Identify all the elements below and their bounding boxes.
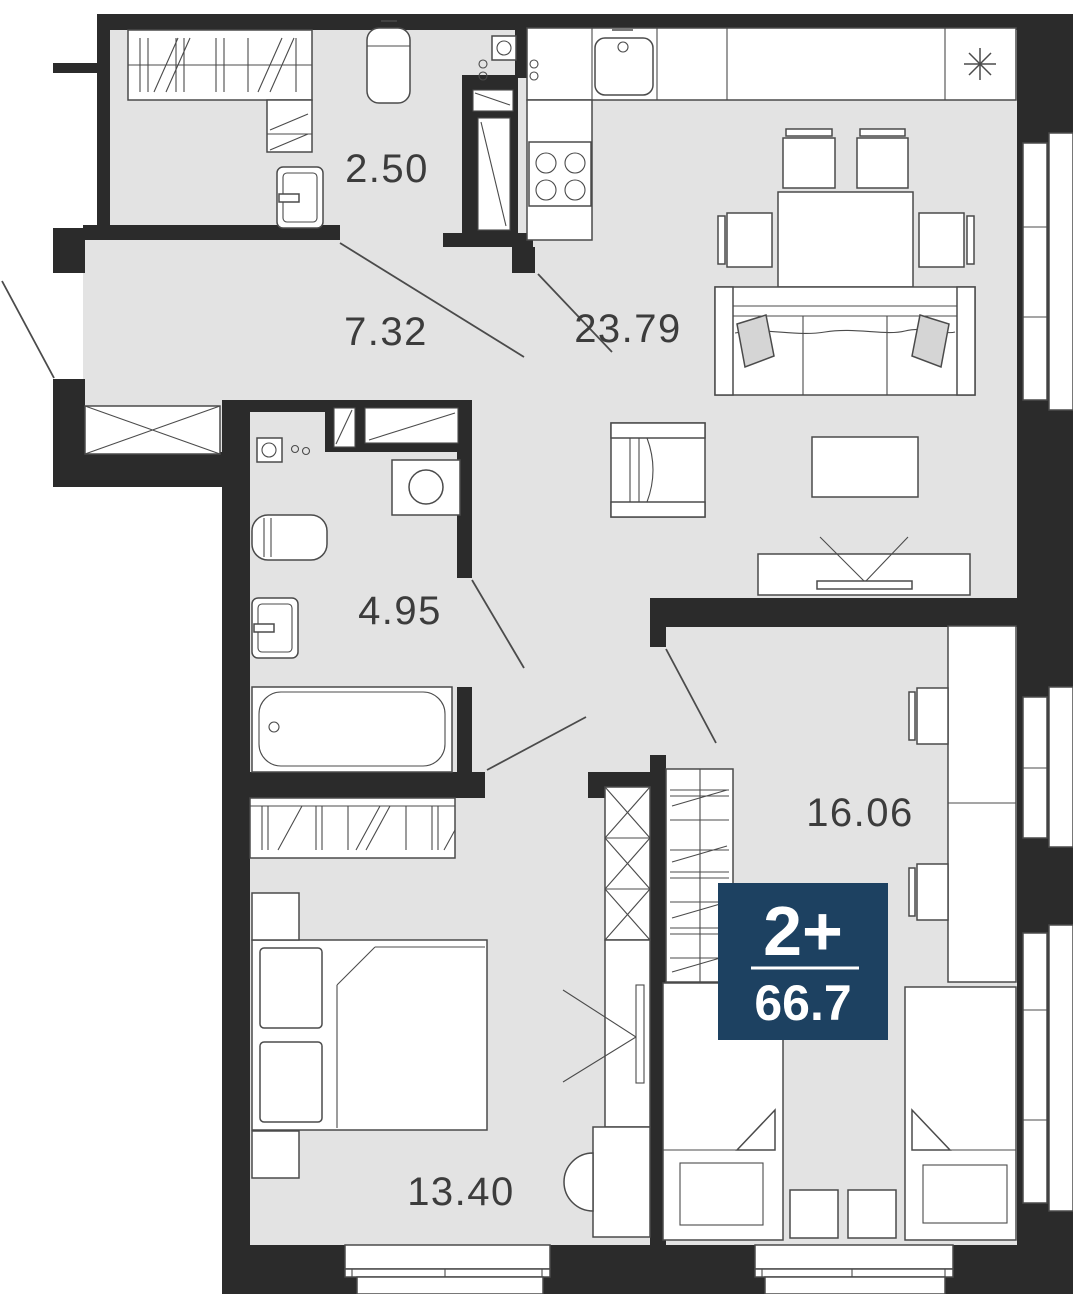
dining-table [778,192,913,287]
desk-chair-upper [909,688,948,744]
desk-chair-lower [909,864,948,920]
badge-total-area: 66.7 [754,975,851,1031]
desk-bedroom-right [948,626,1016,982]
storage-washbasin [277,167,323,228]
storage-boiler [367,21,410,103]
wardrobe-hatch-bedroom-left [250,798,455,858]
room-area-label-bathroom: 4.95 [358,589,442,633]
bathtub [252,687,452,772]
nightstand-between-beds-right [848,1190,896,1238]
pillow [260,948,322,1028]
nightstand-top [252,893,299,940]
room-area-label-storage: 2.50 [345,147,429,191]
floor-plan-page: 2.50 7.32 23.79 4.95 16.06 13.40 2+ 66.7 [0,0,1073,1294]
tv [817,581,912,589]
room-area-label-bedroom-right: 16.06 [806,791,914,835]
coffee-table [812,437,918,497]
armchair [611,423,705,517]
vent-shaft-kitchen [473,90,513,230]
bathroom-washbasin [252,598,298,658]
room-area-label-kitchen-living: 23.79 [574,307,682,351]
bathroom-niches [334,408,458,447]
stove [529,142,591,206]
pillow [260,1042,322,1122]
vent-shaft-bedroom-left [605,787,650,940]
storage-wardrobe-hatch [128,30,312,100]
single-bed-right [905,987,1016,1240]
toilet [252,515,327,560]
nightstand-bottom [252,1131,299,1178]
washing-machine [392,460,460,515]
window-bedroom-right-bottom [755,1245,953,1294]
sofa [715,287,975,395]
dining-chair-top-left [783,129,835,188]
badge-rooms-label: 2+ [763,892,843,970]
storage-shelf-unit [267,100,312,152]
dining-chair-top-right [857,129,908,188]
entry-door-swing [2,281,54,378]
room-area-label-bedroom-left: 13.40 [407,1170,515,1214]
window-bedroom-left-bottom [345,1245,550,1294]
room-area-label-hallway: 7.32 [344,310,428,354]
nightstand-between-beds-left [790,1190,838,1238]
floor-plan-canvas: 2.50 7.32 23.79 4.95 16.06 13.40 2+ 66.7 [0,0,1073,1294]
vent-shaft-hallway [85,406,220,454]
apartment-badge: 2+ 66.7 [718,883,888,1040]
double-bed [252,940,487,1130]
